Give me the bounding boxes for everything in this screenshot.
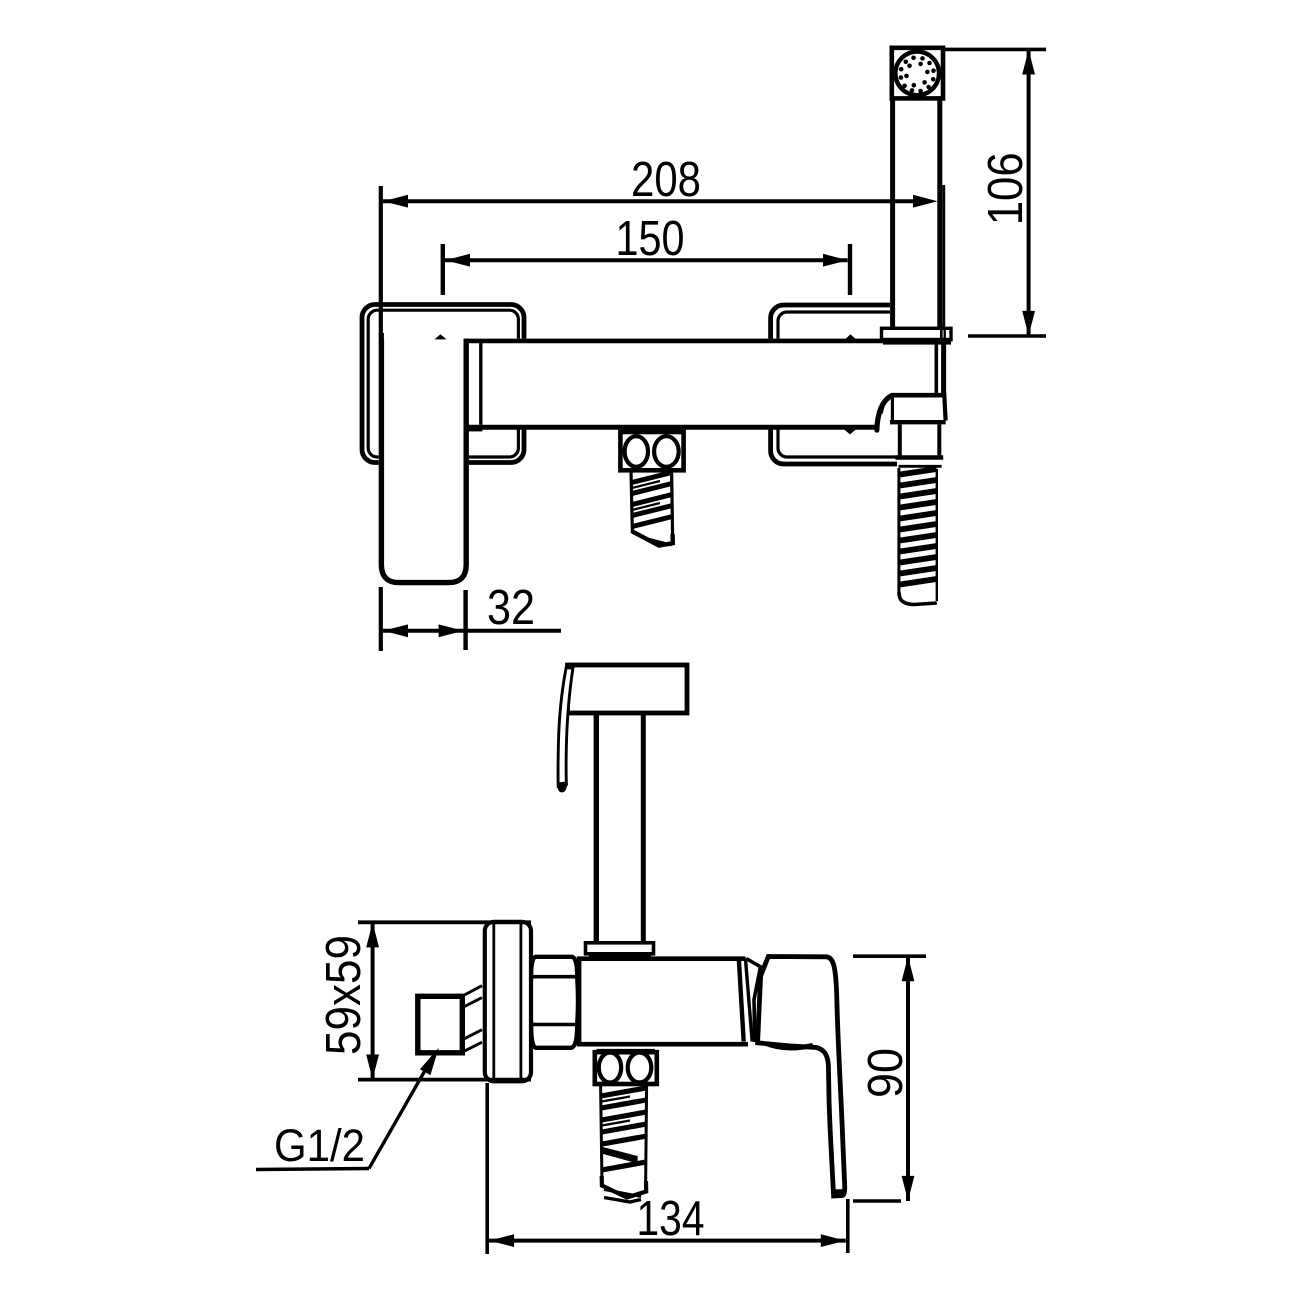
svg-text:90: 90 [859,1048,913,1098]
svg-text:150: 150 [616,212,685,266]
svg-text:G1/2: G1/2 [274,1120,365,1171]
svg-text:208: 208 [631,153,701,207]
svg-text:106: 106 [979,152,1033,225]
svg-text:59x59: 59x59 [317,935,371,1055]
svg-text:32: 32 [487,581,535,635]
svg-text:134: 134 [637,1192,705,1246]
